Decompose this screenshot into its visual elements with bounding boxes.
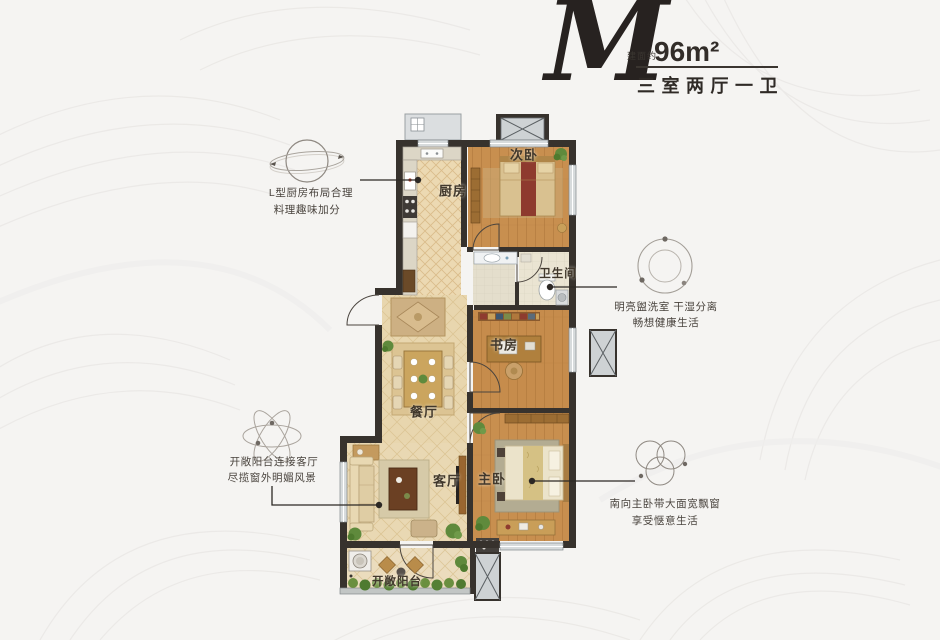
room-label-master: 主卧 bbox=[478, 469, 506, 488]
orbit-dots-icon bbox=[633, 234, 697, 298]
saturn-orbit-icon bbox=[267, 131, 347, 193]
triple-circles-icon bbox=[628, 438, 692, 492]
layout-type-label: 三室两厅一卫 bbox=[637, 72, 784, 98]
kitchen-annotation-line1: L型厨房布局合理 bbox=[269, 185, 353, 200]
room-label-bedroom2: 次卧 bbox=[510, 145, 538, 164]
master-annotation-line2: 享受惬意生活 bbox=[632, 513, 699, 528]
master-annotation-line1: 南向主卧带大面宽飘窗 bbox=[610, 496, 721, 511]
room-label-bathroom: 卫生间 bbox=[539, 265, 577, 281]
bathroom-annotation-line1: 明亮盥洗室 干湿分离 bbox=[614, 299, 717, 314]
bathroom-annotation-line2: 畅想健康生活 bbox=[633, 315, 700, 330]
balcony-annotation-line1: 开敞阳台连接客厅 bbox=[230, 454, 319, 469]
balcony-annotation-line2: 尽揽窗外明媚风景 bbox=[228, 470, 317, 485]
area-prefix-label: 建面约 bbox=[627, 49, 657, 62]
room-label-living: 客厅 bbox=[433, 471, 461, 490]
room-label-kitchen: 厨房 bbox=[439, 181, 467, 200]
kitchen-annotation-line2: 料理趣味加分 bbox=[274, 202, 341, 217]
floorplan-poster: { "title": { "letter": "M", "area_label"… bbox=[0, 0, 940, 640]
title-divider bbox=[636, 66, 778, 68]
room-label-dining: 餐厅 bbox=[410, 402, 438, 421]
area-value: 96m² bbox=[654, 36, 719, 68]
room-label-balcony: 开敞阳台 bbox=[372, 573, 422, 589]
hall-rug bbox=[391, 298, 445, 336]
room-label-study: 书房 bbox=[490, 335, 518, 354]
